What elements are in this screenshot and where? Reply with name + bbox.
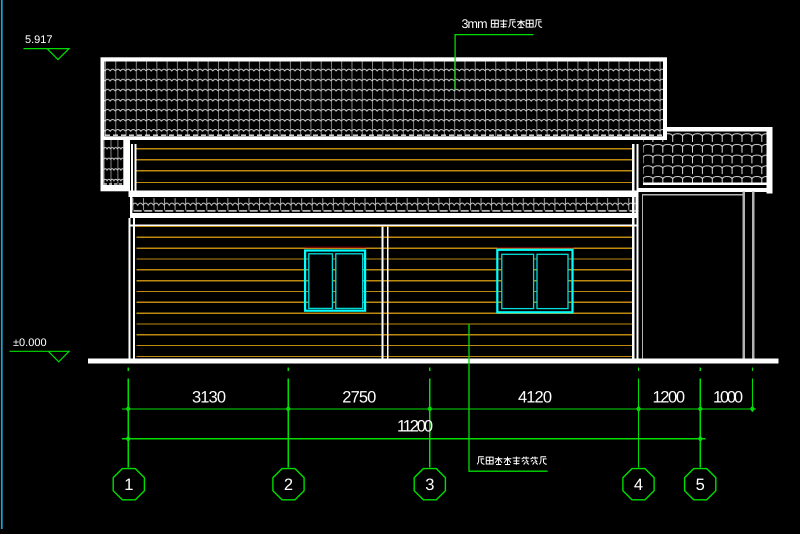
- svg-text:1000: 1000: [713, 388, 743, 406]
- svg-text:3: 3: [425, 476, 434, 494]
- svg-text:3mm: 3mm: [462, 17, 488, 31]
- svg-text:3130: 3130: [192, 388, 226, 406]
- svg-text:4: 4: [634, 476, 643, 494]
- svg-text:1: 1: [124, 476, 133, 494]
- svg-text:2: 2: [284, 476, 293, 494]
- svg-text:4120: 4120: [518, 388, 552, 406]
- svg-text:11200: 11200: [397, 418, 433, 436]
- svg-text:5: 5: [696, 476, 705, 494]
- svg-text:1200: 1200: [653, 388, 686, 406]
- svg-text:±0.000: ±0.000: [13, 337, 47, 349]
- svg-text:2750: 2750: [342, 388, 376, 406]
- svg-text:5.917: 5.917: [25, 34, 53, 46]
